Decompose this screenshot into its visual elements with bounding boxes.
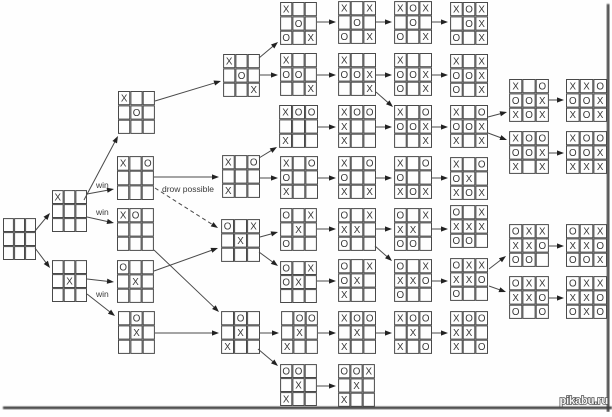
svg-text:O: O bbox=[512, 255, 520, 266]
svg-text:X: X bbox=[583, 82, 590, 93]
svg-text:X: X bbox=[512, 162, 519, 173]
svg-text:X: X bbox=[341, 187, 348, 198]
svg-text:X: X bbox=[597, 227, 604, 238]
svg-text:O: O bbox=[340, 276, 348, 287]
svg-text:O: O bbox=[308, 314, 316, 325]
svg-text:O: O bbox=[452, 208, 460, 219]
svg-text:O: O bbox=[538, 134, 546, 145]
svg-text:X: X bbox=[284, 342, 291, 353]
svg-text:O: O bbox=[465, 122, 473, 133]
svg-text:O: O bbox=[452, 33, 460, 44]
svg-text:O: O bbox=[512, 148, 520, 159]
svg-text:O: O bbox=[512, 307, 520, 318]
svg-text:X: X bbox=[283, 187, 290, 198]
svg-text:O: O bbox=[396, 70, 404, 81]
svg-text:O: O bbox=[538, 82, 546, 93]
svg-text:O: O bbox=[452, 85, 460, 96]
svg-text:O: O bbox=[396, 173, 404, 184]
svg-text:O: O bbox=[569, 227, 577, 238]
svg-text:X: X bbox=[422, 211, 429, 222]
svg-text:X: X bbox=[539, 279, 546, 290]
svg-text:X: X bbox=[308, 263, 315, 274]
svg-text:O: O bbox=[596, 307, 604, 318]
svg-text:O: O bbox=[282, 239, 290, 250]
svg-text:X: X bbox=[570, 110, 577, 121]
svg-text:O: O bbox=[538, 307, 546, 318]
svg-text:X: X bbox=[453, 136, 460, 147]
svg-text:X: X bbox=[570, 82, 577, 93]
svg-text:O: O bbox=[296, 314, 304, 325]
svg-text:X: X bbox=[366, 262, 373, 273]
svg-text:O: O bbox=[465, 71, 473, 82]
svg-text:O: O bbox=[132, 211, 140, 222]
svg-text:O: O bbox=[295, 19, 303, 30]
svg-text:O: O bbox=[295, 366, 303, 377]
svg-text:win: win bbox=[95, 207, 109, 217]
svg-text:X: X bbox=[526, 241, 533, 252]
svg-text:O: O bbox=[396, 211, 404, 222]
svg-text:X: X bbox=[397, 342, 404, 353]
svg-text:O: O bbox=[133, 108, 141, 119]
svg-text:X: X bbox=[410, 276, 417, 287]
svg-text:X: X bbox=[583, 227, 590, 238]
svg-text:X: X bbox=[422, 32, 429, 43]
svg-text:O: O bbox=[396, 84, 404, 95]
svg-text:X: X bbox=[366, 4, 373, 15]
svg-text:X: X bbox=[422, 136, 429, 147]
svg-text:O: O bbox=[340, 173, 348, 184]
svg-text:O: O bbox=[596, 293, 604, 304]
svg-text:X: X bbox=[583, 241, 590, 252]
svg-text:X: X bbox=[512, 134, 519, 145]
svg-text:X: X bbox=[512, 82, 519, 93]
svg-text:O: O bbox=[583, 96, 591, 107]
svg-text:X: X bbox=[295, 225, 302, 236]
svg-text:X: X bbox=[597, 110, 604, 121]
svg-text:O: O bbox=[409, 70, 417, 81]
svg-text:X: X bbox=[597, 162, 604, 173]
svg-text:X: X bbox=[341, 225, 348, 236]
svg-text:drow possible: drow possible bbox=[162, 184, 214, 194]
svg-text:X: X bbox=[570, 241, 577, 252]
svg-text:X: X bbox=[225, 158, 232, 169]
svg-text:X: X bbox=[251, 85, 258, 96]
svg-text:X: X bbox=[283, 394, 290, 405]
svg-text:X: X bbox=[570, 162, 577, 173]
svg-text:X: X bbox=[341, 4, 348, 15]
svg-text:X: X bbox=[422, 4, 429, 15]
svg-text:X: X bbox=[478, 19, 485, 30]
svg-text:O: O bbox=[409, 314, 417, 325]
svg-text:X: X bbox=[397, 225, 404, 236]
svg-text:X: X bbox=[366, 84, 373, 95]
svg-text:O: O bbox=[569, 307, 577, 318]
svg-text:X: X bbox=[341, 108, 348, 119]
svg-text:win: win bbox=[95, 180, 109, 190]
svg-text:O: O bbox=[452, 174, 460, 185]
svg-text:X: X bbox=[583, 279, 590, 290]
svg-text:X: X bbox=[354, 328, 361, 339]
svg-text:pikabu.ru: pikabu.ru bbox=[559, 395, 608, 407]
svg-text:X: X bbox=[341, 159, 348, 170]
svg-text:X: X bbox=[296, 328, 303, 339]
svg-text:O: O bbox=[282, 263, 290, 274]
svg-text:X: X bbox=[397, 108, 404, 119]
svg-text:O: O bbox=[525, 96, 533, 107]
svg-text:X: X bbox=[422, 122, 429, 133]
svg-text:X: X bbox=[466, 174, 473, 185]
svg-text:O: O bbox=[422, 342, 430, 353]
svg-text:X: X bbox=[341, 342, 348, 353]
svg-text:O: O bbox=[396, 262, 404, 273]
svg-text:X: X bbox=[466, 275, 473, 286]
svg-text:O: O bbox=[569, 279, 577, 290]
svg-text:O: O bbox=[295, 70, 303, 81]
svg-text:X: X bbox=[66, 276, 73, 287]
svg-text:X: X bbox=[526, 293, 533, 304]
svg-text:O: O bbox=[409, 239, 417, 250]
svg-text:X: X bbox=[366, 70, 373, 81]
svg-text:O: O bbox=[569, 255, 577, 266]
svg-text:O: O bbox=[237, 314, 245, 325]
svg-text:O: O bbox=[353, 18, 361, 29]
svg-text:X: X bbox=[283, 159, 290, 170]
svg-text:O: O bbox=[353, 108, 361, 119]
svg-text:X: X bbox=[512, 110, 519, 121]
svg-text:O: O bbox=[308, 159, 316, 170]
svg-text:X: X bbox=[453, 57, 460, 68]
svg-text:O: O bbox=[366, 159, 374, 170]
svg-text:X: X bbox=[341, 395, 348, 406]
svg-text:X: X bbox=[341, 56, 348, 67]
svg-text:X: X bbox=[478, 261, 485, 272]
svg-text:X: X bbox=[583, 162, 590, 173]
svg-text:X: X bbox=[410, 225, 417, 236]
svg-text:X: X bbox=[237, 236, 244, 247]
svg-text:O: O bbox=[409, 122, 417, 133]
svg-text:O: O bbox=[525, 110, 533, 121]
svg-text:O: O bbox=[422, 159, 430, 170]
svg-text:X: X bbox=[397, 159, 404, 170]
svg-text:O: O bbox=[478, 314, 486, 325]
svg-text:O: O bbox=[422, 108, 430, 119]
svg-text:O: O bbox=[282, 173, 290, 184]
svg-text:X: X bbox=[453, 5, 460, 16]
svg-text:X: X bbox=[341, 290, 348, 301]
svg-text:X: X bbox=[422, 187, 429, 198]
svg-text:O: O bbox=[478, 108, 486, 119]
svg-text:X: X bbox=[478, 122, 485, 133]
svg-text:O: O bbox=[525, 134, 533, 145]
svg-text:X: X bbox=[354, 276, 361, 287]
svg-text:X: X bbox=[478, 33, 485, 44]
svg-text:X: X bbox=[570, 134, 577, 145]
svg-text:O: O bbox=[308, 108, 316, 119]
svg-text:X: X bbox=[133, 328, 140, 339]
svg-text:X: X bbox=[132, 277, 139, 288]
svg-text:X: X bbox=[583, 293, 590, 304]
svg-text:O: O bbox=[295, 108, 303, 119]
svg-text:X: X bbox=[397, 187, 404, 198]
svg-text:X: X bbox=[354, 225, 361, 236]
svg-text:X: X bbox=[295, 380, 302, 391]
svg-text:O: O bbox=[409, 18, 417, 29]
svg-text:X: X bbox=[250, 222, 257, 233]
svg-text:X: X bbox=[478, 208, 485, 219]
svg-text:X: X bbox=[453, 222, 460, 233]
svg-text:O: O bbox=[465, 314, 473, 325]
svg-text:X: X bbox=[453, 275, 460, 286]
svg-text:X: X bbox=[341, 122, 348, 133]
svg-text:O: O bbox=[340, 367, 348, 378]
svg-text:X: X bbox=[453, 108, 460, 119]
svg-text:O: O bbox=[340, 70, 348, 81]
svg-text:O: O bbox=[452, 71, 460, 82]
svg-text:X: X bbox=[282, 136, 289, 147]
svg-text:X: X bbox=[397, 56, 404, 67]
svg-text:X: X bbox=[466, 222, 473, 233]
svg-text:X: X bbox=[453, 314, 460, 325]
svg-text:X: X bbox=[341, 136, 348, 147]
svg-text:O: O bbox=[569, 96, 577, 107]
svg-text:O: O bbox=[569, 148, 577, 159]
svg-text:O: O bbox=[282, 211, 290, 222]
svg-text:X: X bbox=[466, 261, 473, 272]
svg-text:X: X bbox=[539, 148, 546, 159]
svg-text:O: O bbox=[583, 110, 591, 121]
svg-text:X: X bbox=[308, 84, 315, 95]
svg-text:X: X bbox=[422, 262, 429, 273]
svg-text:X: X bbox=[478, 85, 485, 96]
svg-text:O: O bbox=[452, 122, 460, 133]
svg-text:X: X bbox=[453, 160, 460, 171]
svg-text:O: O bbox=[282, 33, 290, 44]
svg-text:X: X bbox=[478, 222, 485, 233]
svg-text:X: X bbox=[478, 57, 485, 68]
svg-text:O: O bbox=[596, 134, 604, 145]
svg-text:O: O bbox=[538, 293, 546, 304]
svg-text:X: X bbox=[283, 5, 290, 16]
svg-text:O: O bbox=[478, 342, 486, 353]
svg-text:X: X bbox=[422, 70, 429, 81]
svg-text:X: X bbox=[120, 211, 127, 222]
svg-text:O: O bbox=[596, 82, 604, 93]
svg-text:X: X bbox=[597, 279, 604, 290]
svg-text:O: O bbox=[525, 148, 533, 159]
svg-text:X: X bbox=[366, 187, 373, 198]
svg-text:X: X bbox=[224, 342, 231, 353]
svg-text:O: O bbox=[422, 314, 430, 325]
svg-text:X: X bbox=[570, 293, 577, 304]
svg-text:X: X bbox=[539, 227, 546, 238]
svg-text:O: O bbox=[512, 96, 520, 107]
svg-text:O: O bbox=[465, 236, 473, 247]
svg-text:X: X bbox=[512, 241, 519, 252]
svg-text:O: O bbox=[282, 366, 290, 377]
svg-text:O: O bbox=[224, 222, 232, 233]
svg-text:X: X bbox=[539, 96, 546, 107]
svg-text:X: X bbox=[478, 5, 485, 16]
svg-text:X: X bbox=[397, 4, 404, 15]
svg-text:O: O bbox=[366, 314, 374, 325]
svg-text:O: O bbox=[478, 275, 486, 286]
svg-text:O: O bbox=[340, 32, 348, 43]
svg-text:O: O bbox=[452, 289, 460, 300]
svg-text:O: O bbox=[525, 255, 533, 266]
svg-text:O: O bbox=[465, 5, 473, 16]
svg-text:X: X bbox=[466, 328, 473, 339]
svg-text:X: X bbox=[478, 188, 485, 199]
svg-text:X: X bbox=[121, 94, 128, 105]
svg-text:O: O bbox=[452, 236, 460, 247]
svg-text:X: X bbox=[597, 148, 604, 159]
svg-text:X: X bbox=[410, 328, 417, 339]
svg-text:X: X bbox=[341, 314, 348, 325]
svg-text:X: X bbox=[226, 57, 233, 68]
svg-text:O: O bbox=[512, 279, 520, 290]
svg-text:X: X bbox=[397, 314, 404, 325]
svg-text:X: X bbox=[478, 71, 485, 82]
svg-text:O: O bbox=[396, 239, 404, 250]
svg-text:O: O bbox=[282, 277, 290, 288]
svg-text:X: X bbox=[453, 342, 460, 353]
svg-text:X: X bbox=[583, 307, 590, 318]
svg-text:O: O bbox=[238, 71, 246, 82]
svg-text:O: O bbox=[512, 227, 520, 238]
svg-text:O: O bbox=[353, 70, 361, 81]
svg-text:X: X bbox=[366, 32, 373, 43]
svg-text:X: X bbox=[366, 211, 373, 222]
svg-text:O: O bbox=[583, 148, 591, 159]
svg-text:X: X bbox=[526, 279, 533, 290]
svg-text:X: X bbox=[539, 110, 546, 121]
svg-text:X: X bbox=[353, 381, 360, 392]
svg-text:X: X bbox=[512, 293, 519, 304]
svg-text:X: X bbox=[282, 108, 289, 119]
svg-text:X: X bbox=[597, 96, 604, 107]
svg-text:O: O bbox=[596, 241, 604, 252]
svg-text:X: X bbox=[397, 276, 404, 287]
svg-text:X: X bbox=[422, 84, 429, 95]
svg-text:O: O bbox=[478, 160, 486, 171]
svg-text:O: O bbox=[282, 70, 290, 81]
svg-text:X: X bbox=[295, 277, 302, 288]
svg-text:X: X bbox=[453, 328, 460, 339]
svg-text:O: O bbox=[465, 188, 473, 199]
svg-text:O: O bbox=[452, 261, 460, 272]
svg-text:O: O bbox=[340, 262, 348, 273]
svg-text:O: O bbox=[133, 314, 141, 325]
svg-text:X: X bbox=[453, 188, 460, 199]
svg-text:O: O bbox=[396, 290, 404, 301]
svg-text:O: O bbox=[250, 158, 258, 169]
svg-text:O: O bbox=[366, 108, 374, 119]
svg-text:X: X bbox=[526, 227, 533, 238]
svg-text:X: X bbox=[366, 367, 373, 378]
svg-text:O: O bbox=[583, 134, 591, 145]
svg-text:X: X bbox=[478, 136, 485, 147]
svg-text:O: O bbox=[409, 4, 417, 15]
svg-text:O: O bbox=[538, 241, 546, 252]
svg-text:O: O bbox=[583, 255, 591, 266]
svg-text:X: X bbox=[120, 159, 127, 170]
svg-text:O: O bbox=[353, 314, 361, 325]
svg-text:X: X bbox=[55, 192, 62, 203]
svg-text:X: X bbox=[308, 211, 315, 222]
svg-text:O: O bbox=[396, 122, 404, 133]
svg-text:X: X bbox=[237, 328, 244, 339]
svg-text:X: X bbox=[308, 33, 315, 44]
svg-text:O: O bbox=[340, 211, 348, 222]
svg-text:X: X bbox=[225, 186, 232, 197]
svg-text:O: O bbox=[119, 263, 127, 274]
svg-text:O: O bbox=[353, 367, 361, 378]
svg-text:O: O bbox=[409, 187, 417, 198]
svg-text:O: O bbox=[144, 159, 152, 170]
svg-text:O: O bbox=[422, 276, 430, 287]
svg-text:O: O bbox=[396, 32, 404, 43]
svg-text:X: X bbox=[283, 56, 290, 67]
svg-text:win: win bbox=[95, 289, 109, 299]
svg-text:X: X bbox=[597, 255, 604, 266]
svg-text:X: X bbox=[539, 162, 546, 173]
svg-text:O: O bbox=[340, 239, 348, 250]
svg-text:O: O bbox=[465, 19, 473, 30]
